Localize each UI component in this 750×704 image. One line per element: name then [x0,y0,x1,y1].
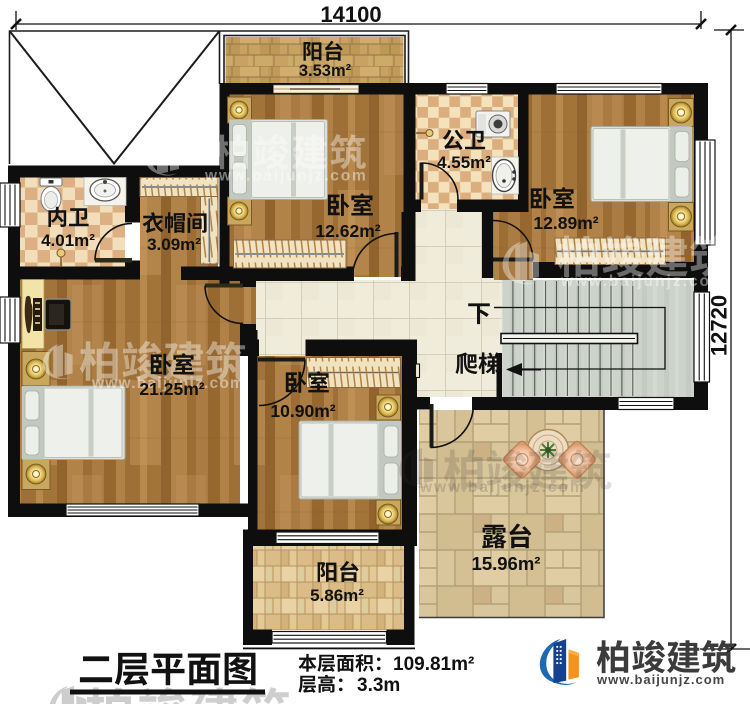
svg-text:3.09m²: 3.09m² [147,235,201,254]
svg-text:3.53m²: 3.53m² [299,62,352,80]
svg-text:www.baijunjz.com: www.baijunjz.com [204,168,368,185]
svg-text:4.01m²: 4.01m² [41,231,95,250]
svg-text:12.89m²: 12.89m² [533,213,598,233]
svg-text:www.baijunjz.com: www.baijunjz.com [596,672,725,687]
svg-text:3.3m: 3.3m [357,675,400,696]
svg-text:21.25m²: 21.25m² [139,379,204,399]
svg-text:15.96m²: 15.96m² [472,553,541,574]
svg-text:14100: 14100 [320,2,381,27]
svg-text:www.baijunjz.com: www.baijunjz.com [560,273,727,290]
svg-text:109.81m²: 109.81m² [393,654,474,675]
svg-text:4.55m²: 4.55m² [437,153,491,172]
svg-text:12720: 12720 [707,295,732,356]
svg-text:5.86m²: 5.86m² [310,586,364,605]
svg-text:www.baijunjz.com: www.baijunjz.com [419,479,586,496]
svg-text:12.62m²: 12.62m² [315,221,380,241]
svg-text:10.90m²: 10.90m² [270,401,335,421]
